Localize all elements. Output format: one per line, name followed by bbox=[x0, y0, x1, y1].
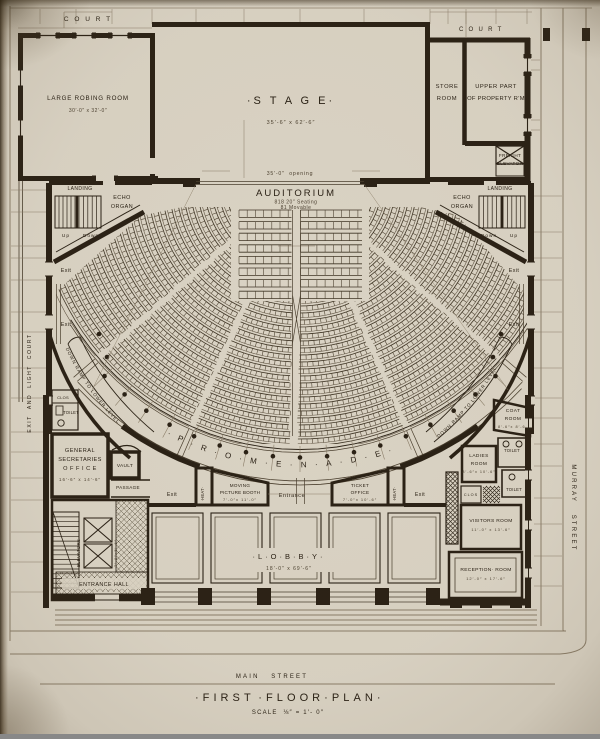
svg-text:MURRAY STREET: MURRAY STREET bbox=[570, 464, 576, 551]
svg-text:GENERAL: GENERAL bbox=[65, 448, 95, 454]
svg-text:COAT: COAT bbox=[506, 408, 521, 414]
svg-text:11′-0″ x 13′-6″: 11′-0″ x 13′-6″ bbox=[471, 527, 510, 532]
svg-text:CLOS: CLOS bbox=[464, 493, 478, 497]
svg-text:AUDITORIUM: AUDITORIUM bbox=[256, 188, 336, 199]
svg-text:C O U R T: C O U R T bbox=[459, 27, 503, 33]
svg-text:LANDING: LANDING bbox=[67, 186, 92, 192]
svg-text:ORGAN: ORGAN bbox=[111, 204, 133, 210]
svg-text:VAULT: VAULT bbox=[117, 463, 133, 469]
svg-text:TOILET: TOILET bbox=[504, 448, 520, 453]
svg-text:O F F I C E: O F F I C E bbox=[63, 466, 97, 472]
svg-text:UPPER PART: UPPER PART bbox=[475, 84, 517, 90]
svg-text:30′-0″ x 32′-0″: 30′-0″ x 32′-0″ bbox=[69, 108, 107, 114]
svg-text:MAIN STREET: MAIN STREET bbox=[236, 674, 308, 680]
svg-text:SCALE ⅛″ = 1′- 0″: SCALE ⅛″ = 1′- 0″ bbox=[252, 710, 324, 716]
svg-text:·S T A G E·: ·S T A G E· bbox=[247, 95, 335, 107]
svg-text:35′-0″ opening: 35′-0″ opening bbox=[267, 171, 314, 177]
svg-text:·HEAT·: ·HEAT· bbox=[392, 487, 397, 502]
svg-text:SECRETARIES: SECRETARIES bbox=[58, 457, 101, 463]
svg-text:LARGE ROBING ROOM: LARGE ROBING ROOM bbox=[47, 95, 129, 102]
svg-text:ELEVATORS: ELEVATORS bbox=[76, 539, 81, 567]
svg-text:·HEAT·: ·HEAT· bbox=[200, 487, 205, 502]
svg-text:Exit: Exit bbox=[61, 268, 72, 274]
svg-text:ORGAN: ORGAN bbox=[451, 204, 473, 210]
svg-text:LANDING: LANDING bbox=[487, 186, 512, 192]
svg-text:8′-6″x 10′-6″: 8′-6″x 10′-6″ bbox=[462, 470, 495, 474]
svg-text:PICTURE BOOTH: PICTURE BOOTH bbox=[220, 490, 260, 495]
svg-text:81 Movable: 81 Movable bbox=[281, 205, 312, 211]
svg-text:EXIT AND LIGHT COURT: EXIT AND LIGHT COURT bbox=[27, 333, 33, 432]
svg-text:OFFICE: OFFICE bbox=[351, 490, 370, 495]
svg-text:Exit: Exit bbox=[509, 268, 520, 274]
svg-text:Exit: Exit bbox=[415, 492, 425, 498]
svg-text:ECHO: ECHO bbox=[113, 195, 131, 201]
svg-text:7′-0″x 11′-0″: 7′-0″x 11′-0″ bbox=[223, 497, 257, 502]
svg-text:ROOM: ROOM bbox=[437, 96, 457, 102]
svg-text:16′-6″ x 14′-6″: 16′-6″ x 14′-6″ bbox=[59, 477, 101, 482]
svg-text:Exit: Exit bbox=[509, 322, 520, 328]
svg-text:· F I R S T · F L O O R · P L: · F I R S T · F L O O R · P L A N · bbox=[195, 692, 381, 704]
svg-text:12′-0″ x 17′-6″: 12′-0″ x 17′-6″ bbox=[466, 576, 506, 581]
svg-text:TICKET: TICKET bbox=[351, 483, 369, 488]
svg-text:RECEPTION· ROOM: RECEPTION· ROOM bbox=[460, 567, 511, 573]
svg-text:ROOM: ROOM bbox=[505, 416, 522, 422]
svg-text:7′-0″x 10′-6″: 7′-0″x 10′-6″ bbox=[343, 497, 377, 502]
svg-text:·L·O·B·B·Y·: ·L·O·B·B·Y· bbox=[253, 552, 326, 561]
svg-text:Up: Up bbox=[62, 233, 70, 239]
svg-text:8′-6″x 8′-6″: 8′-6″x 8′-6″ bbox=[498, 425, 528, 429]
svg-text:ROOM: ROOM bbox=[471, 461, 488, 467]
svg-text:35′-6″ x 62′-6″: 35′-6″ x 62′-6″ bbox=[267, 120, 316, 126]
svg-text:VISITORS ROOM: VISITORS ROOM bbox=[469, 518, 512, 524]
svg-text:Exit: Exit bbox=[167, 492, 177, 498]
svg-text:Exit: Exit bbox=[61, 322, 72, 328]
svg-text:STORE: STORE bbox=[436, 84, 459, 90]
svg-text:ENTRANCE HALL: ENTRANCE HALL bbox=[79, 582, 129, 588]
svg-text:LADIES: LADIES bbox=[469, 453, 488, 459]
svg-text:ECHO: ECHO bbox=[453, 195, 471, 201]
svg-text:TOILET: TOILET bbox=[506, 487, 522, 492]
svg-text:FREIGHT: FREIGHT bbox=[499, 153, 521, 158]
svg-text:OF PROPERTY R’M: OF PROPERTY R’M bbox=[467, 96, 525, 102]
svg-text:CLOS: CLOS bbox=[57, 395, 69, 400]
svg-text:Up: Up bbox=[510, 233, 518, 239]
svg-text:MOVING: MOVING bbox=[230, 483, 251, 488]
svg-text:TOILET: TOILET bbox=[63, 410, 79, 415]
svg-text:PASSAGE: PASSAGE bbox=[116, 485, 140, 490]
svg-text:18′-0″ x 69′-6″: 18′-0″ x 69′-6″ bbox=[266, 566, 312, 572]
